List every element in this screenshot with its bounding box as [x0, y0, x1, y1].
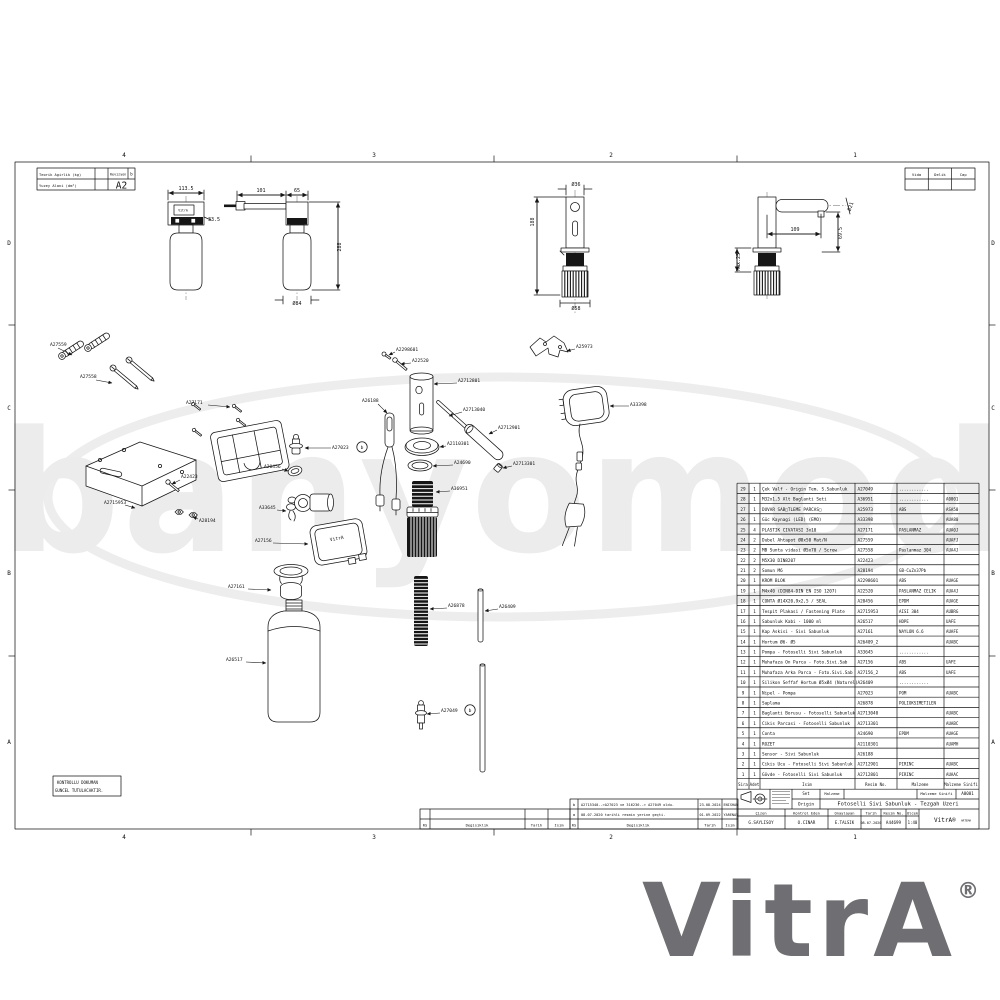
kontrol-label: Kontrol Eden: [793, 811, 820, 815]
parts-cell-sinif: AUABC: [946, 762, 959, 767]
parts-cell-sira: 9: [742, 690, 745, 696]
part-cap-hanger: [274, 565, 308, 600]
view-dispenser-side: [224, 191, 340, 304]
parts-cell-resim: A27161: [858, 629, 874, 635]
parts-cell-adet: 1: [753, 639, 756, 645]
leader-line: [389, 352, 395, 355]
revision-header: Tarih: [704, 822, 715, 827]
parts-cell-resim: A26409_2: [858, 639, 879, 645]
parts-cell-sira: 21: [740, 568, 746, 574]
parts-cell-malzeme: NAYLON 6.6: [899, 629, 924, 634]
parts-cell-sira: 6: [742, 721, 745, 727]
part-label: A20456: [264, 464, 281, 470]
parts-cell-adet: 2: [753, 548, 756, 554]
info-revision-value: b: [130, 172, 133, 177]
revision-header: RS: [572, 822, 577, 827]
parts-cell-sinif: UAFE: [946, 619, 956, 624]
dimension-label: Ø58: [571, 305, 580, 312]
zone-number-bottom: 1: [853, 834, 857, 841]
parts-cell-isim: DUVAR SAB□TLEME PARCAS□: [762, 507, 822, 513]
revision-date: 01.09.2022: [700, 813, 721, 817]
parts-cell-sinif: AUAFE: [946, 629, 959, 634]
dimension-label: 33.5: [208, 217, 220, 223]
parts-cell-malzeme: AISI 304: [899, 609, 919, 614]
view-dispenser-front: [168, 190, 211, 300]
part-label: A2713040: [463, 407, 485, 413]
revision-header: RS: [423, 822, 428, 827]
onay-label: Onaylayan: [835, 811, 855, 815]
dimension-label: 113.5: [178, 186, 193, 192]
parts-cell-adet: 2: [753, 558, 756, 564]
dimension-label: 65: [294, 188, 300, 194]
dimension-label: Max.25: [736, 253, 742, 271]
parts-cell-resim: A2713301: [858, 721, 879, 727]
parts-cell-isim: Hortum Ø6- Ø5: [762, 638, 796, 645]
info-revision-label: Revizyon: [110, 173, 126, 177]
parts-cell-adet: 1: [753, 588, 756, 594]
parts-cell-isim: MB Sunta vidasi Ø5x70 / Screw: [762, 547, 837, 554]
parts-cell-malzeme: ............: [899, 497, 929, 502]
leader-line: [246, 662, 266, 663]
revision-header: Degisiklik: [627, 822, 651, 827]
parts-cell-adet: 1: [753, 517, 756, 523]
parts-cell-isim: Cikis Ucu - Fotoselli Sivi Sabunluk: [762, 762, 853, 768]
parts-cell-adet: 1: [753, 670, 756, 676]
revision-date: 23.08.2024: [700, 803, 721, 807]
parts-cell-sira: 28: [740, 497, 746, 503]
parts-cell-sinif: AUABC: [946, 690, 959, 695]
leader-line: [434, 383, 457, 384]
part-label: A24690: [454, 460, 471, 466]
parts-cell-resim: A27156: [858, 660, 874, 666]
revision-change: A2715340-->A27023 ve 316236--> A27049 ol…: [581, 803, 674, 807]
parts-cell-sinif: AUAAC: [946, 772, 959, 777]
parts-cell-resim: A25973: [858, 507, 874, 513]
part-cover-front: [309, 518, 369, 571]
parts-cell-sira: 5: [742, 731, 745, 737]
parts-cell-resim: A26878: [858, 700, 874, 706]
parts-cell-resim: A2715953: [858, 609, 879, 615]
part-sensor: [376, 413, 400, 515]
parts-cell-malzeme: ............: [899, 650, 929, 655]
control-note-line1: KONTROLLU DOKUMAN: [57, 780, 99, 785]
revision-header: Isim: [554, 822, 564, 827]
part-label: A2715953: [104, 500, 126, 506]
dimension-label: 69.5: [838, 227, 844, 239]
projection-symbol: [741, 792, 767, 805]
parts-cell-sira: 7: [742, 711, 745, 717]
parts-cell-resim: A2712901: [858, 762, 879, 768]
parts-cell-sinif: AUAGE: [946, 731, 959, 736]
parts-cell-sinif: AUAGE: [946, 599, 959, 604]
zone-letter-right: D: [991, 240, 995, 247]
part-seal-conta: [408, 460, 432, 471]
zone-letter-right: C: [991, 405, 995, 412]
parts-cell-resim: A33398: [858, 517, 874, 523]
parts-cell-resim: A27156_2: [858, 670, 879, 676]
parts-cell-resim: A2110301: [858, 741, 879, 747]
zone-number-top: 4: [122, 152, 126, 159]
titleblock-note-bars: [772, 791, 790, 804]
technical-drawing: 44332211DDCCBBAATeorik Agirlik (kg)Yuzey…: [0, 0, 1000, 1000]
parts-header: Isim: [802, 782, 812, 787]
parts-cell-resim: A2712801: [858, 772, 879, 778]
parts-cell-sira: 8: [742, 700, 745, 706]
parts-cell-sira: 26: [740, 517, 746, 523]
part-outlet-tip: [493, 463, 503, 473]
zone-number-top: 3: [372, 152, 376, 159]
parts-cell-sira: 4: [742, 741, 745, 747]
parts-cell-malzeme: ABS: [899, 670, 907, 675]
parts-cell-sira: 18: [740, 599, 746, 605]
parts-cell-sira: 15: [740, 629, 746, 635]
part-label: A26409: [499, 604, 516, 610]
leader-line: [440, 446, 446, 447]
parts-cell-isim: Silikon Seffaf Hortum Ø5xØ4 (Naturel): [762, 679, 858, 686]
parts-cell-adet: 1: [753, 578, 756, 584]
parts-cell-malzeme: EPDM: [899, 731, 909, 736]
parts-cell-adet: 1: [753, 762, 756, 768]
part-screw-tiny: [381, 351, 408, 371]
parts-cell-sinif: AUA4J: [946, 548, 958, 553]
leader-line: [378, 404, 387, 413]
parts-cell-sira: 13: [740, 650, 746, 656]
parts-cell-resim: A26409: [858, 680, 874, 686]
parts-cell-sira: 2: [742, 762, 745, 768]
parts-cell-resim: A26188: [858, 751, 874, 757]
part-label: A27171: [186, 400, 203, 406]
part-housing-back: [210, 420, 290, 483]
parts-cell-malzeme: ABS: [899, 507, 907, 512]
zone-letter-left: A: [7, 739, 11, 746]
part-label: A27161: [228, 584, 245, 590]
view-spout-front: [534, 185, 592, 314]
kontrol-value: O.CINAR: [798, 820, 816, 825]
dimension-label: Ø36: [571, 181, 580, 188]
parts-cell-sinif: AUAFJ: [946, 537, 958, 542]
parts-cell-malzeme: POM: [899, 690, 907, 695]
parts-cell-isim: PLASTIK CIVATASI 3x10: [762, 527, 817, 533]
parts-cell-adet: 1: [753, 711, 756, 717]
parts-cell-resim: A26517: [858, 619, 874, 625]
parts-cell-resim: A2713040: [858, 711, 879, 717]
parts-cell-isim: Çek Valf - Origin Tem. S.Sabunluk: [762, 487, 848, 493]
parts-cell-isim: Kap Askisi - Sivi Sabunluk: [762, 629, 830, 635]
leader-line: [125, 505, 135, 508]
parts-cell-sinif: AUABC: [946, 721, 959, 726]
parts-cell-sinif: ASA50: [946, 507, 959, 512]
leader-line: [96, 380, 112, 383]
control-note-box: [53, 776, 121, 796]
parts-cell-sira: 29: [740, 487, 746, 493]
parts-cell-isim: Cikis Parcasi - Fotoselli Sabunluk: [762, 721, 850, 727]
parts-cell-malzeme: GB-CuZn37Pb: [899, 568, 927, 573]
device-brand-label: VitrA: [178, 209, 188, 213]
revision-name: ENISHAN: [724, 803, 739, 807]
parts-cell-isim: Muhafaza On Parca - Foto.Sivi.Sab: [762, 660, 848, 666]
dimension-label: 109: [790, 227, 799, 233]
drawing-title: Fotoselli Sivi Sabunluk - Tezgah Uzeri: [837, 802, 958, 808]
dimension-label: 188: [530, 217, 536, 226]
parts-cell-isim: Pompa - Fotoselli Sivi Sabunluk: [762, 650, 843, 656]
part-label: A2713301: [513, 461, 535, 467]
parts-cell-resim: A27558: [858, 548, 874, 554]
titleblock-origin: Origin: [798, 801, 815, 807]
revision-rs: a: [573, 812, 575, 817]
parts-cell-isim: Baglanti Borusu - Fotoselli Sabunluk: [762, 711, 856, 717]
part-label: A27558: [80, 374, 97, 380]
parts-cell-isim: Conta: [762, 731, 775, 737]
zone-letter-left: D: [7, 240, 11, 247]
parts-cell-sira: 22: [740, 558, 746, 564]
part-label: A28194: [199, 518, 216, 524]
part-label: A25973: [576, 344, 593, 350]
parts-cell-malzeme: PIRINC: [899, 762, 914, 767]
parts-cell-sinif: UAFE: [946, 670, 956, 675]
revision-change: 08.07.2020 tarihli resmin yerine geçti.: [581, 813, 665, 817]
tarih-label: Tarih: [865, 811, 876, 815]
leader-line: [489, 430, 497, 434]
parts-cell-isim: M4x40 (DIN84-DIN EN ISO 1207): [762, 588, 837, 594]
parts-cell-malzeme: PASLANMAZ: [899, 527, 922, 532]
parts-cell-resim: A27559: [858, 537, 874, 543]
parts-cell-sira: 11: [740, 670, 746, 676]
leader-line: [427, 713, 440, 714]
parts-cell-isim: KROM BLOK: [762, 578, 786, 584]
parts-cell-malzeme: Paslanmaz 304: [899, 548, 932, 553]
parts-cell-adet: 1: [753, 751, 756, 757]
part-nipple: [290, 434, 303, 454]
resim-no-label: Resim No.: [884, 811, 904, 815]
parts-cell-adet: 1: [753, 731, 756, 737]
leader-line: [273, 543, 308, 544]
leader-line: [485, 609, 498, 611]
parts-cell-adet: 2: [753, 537, 756, 543]
parts-cell-resim: A27171: [858, 527, 874, 533]
hole-table-header: Vida: [912, 172, 921, 177]
parts-cell-adet: 1: [753, 599, 756, 605]
part-label: A26188: [362, 398, 379, 404]
part-pump: [287, 494, 334, 521]
leader-line: [430, 608, 447, 609]
parts-cell-isim: Dubel Ahtapot Ø8x50 Mat/N: [762, 536, 827, 543]
part-bottle: [268, 600, 320, 722]
leader-line: [503, 466, 512, 468]
leader-line: [193, 517, 198, 519]
leader-line: [208, 405, 230, 407]
parts-cell-malzeme: PIRINC: [899, 772, 914, 777]
parts-cell-isim: Gövde - Fotoselli Sivi Sabunluk: [762, 772, 843, 778]
parts-cell-adet: 1: [753, 772, 756, 778]
parts-cell-sira: 3: [742, 751, 745, 757]
hole-table-header: Delik: [934, 172, 946, 177]
parts-cell-adet: 1: [753, 487, 756, 493]
parts-cell-adet: 1: [753, 619, 756, 625]
parts-cell-isim: Tespit Plakasi / Fastening Plate: [762, 609, 845, 615]
part-fastening-plate: [86, 442, 196, 506]
parts-cell-sira: 19: [740, 588, 746, 594]
cizen-label: Çizen: [755, 811, 766, 815]
parts-cell-resim: A27023: [858, 690, 874, 696]
parts-cell-sira: 20: [740, 578, 746, 584]
parts-cell-sira: 12: [740, 660, 746, 666]
parts-cell-resim: A20456: [858, 599, 874, 605]
leader-line: [567, 349, 575, 351]
parts-cell-isim: Nipel - Pompa: [762, 690, 796, 696]
parts-cell-sinif: A0001: [946, 497, 959, 502]
parts-cell-malzeme: ............: [899, 680, 929, 685]
parts-header: Adet: [750, 782, 760, 787]
hole-table-header: Cap: [960, 172, 968, 177]
registered-mark: ®: [957, 879, 979, 904]
parts-cell-isim: M32x1,5 Alt Baglanti Seti: [762, 497, 827, 503]
parts-cell-adet: 1: [753, 741, 756, 747]
parts-cell-isim: ROZET: [762, 741, 775, 747]
part-label: A36951: [451, 486, 468, 492]
parts-cell-sinif: UAFE: [946, 660, 956, 665]
part-label: A22423: [181, 474, 198, 480]
part-label: A2298601: [396, 347, 418, 353]
olcek-value: 1:40: [908, 820, 918, 825]
parts-cell-isim: Somun M6: [762, 568, 783, 574]
parts-cell-malzeme: HDPE: [899, 619, 909, 624]
zone-letter-left: C: [7, 405, 11, 412]
parts-cell-sinif: AUABC: [946, 639, 959, 644]
zone-letter-right: A: [991, 739, 995, 746]
parts-cell-sinif: AUABC: [946, 711, 959, 716]
leader-line: [277, 510, 286, 511]
part-label: A33398: [630, 402, 647, 408]
leader-line: [436, 491, 450, 492]
titleblock-logo: VitrA®: [934, 817, 956, 824]
parts-cell-adet: 4: [753, 527, 756, 533]
part-main-body: [410, 373, 433, 434]
dimension-label: 101: [256, 188, 265, 194]
titleblock-artema: ARTEMA: [961, 819, 971, 823]
parts-cell-adet: 1: [753, 497, 756, 503]
parts-cell-resim: A28194: [858, 568, 874, 574]
part-label: A33645: [259, 505, 276, 511]
parts-cell-sira: 27: [740, 507, 746, 513]
revision-header: Degisiklik: [466, 822, 490, 827]
parts-cell-sinif: AUAMH: [946, 741, 959, 746]
olcek-label: Olcek: [907, 811, 919, 815]
parts-cell-resim: A2298601: [858, 578, 879, 584]
parts-cell-resim: A27049: [858, 487, 874, 493]
parts-cell-adet: 1: [753, 690, 756, 696]
dimension-label: Ø84: [292, 300, 301, 307]
parts-cell-isim: Muhafaza Arka Parca - Foto.Sivi.Sab: [762, 670, 853, 676]
leader-line: [248, 589, 271, 590]
parts-cell-malzeme: PASLANMAZ CELIK: [899, 588, 937, 593]
parts-cell-resim: A22520: [858, 588, 874, 594]
parts-cell-malzeme: ABS: [899, 660, 907, 665]
zone-number-bottom: 2: [609, 834, 613, 841]
parts-cell-isim: Sensor - Sivi Sabunluk: [762, 751, 819, 757]
titleblock-malzeme-label: Malzeme: [824, 792, 839, 796]
part-hoses: [478, 589, 485, 772]
leader-line: [433, 465, 453, 466]
part-mounting-screws: [109, 356, 156, 392]
parts-cell-adet: 1: [753, 721, 756, 727]
part-seal-small: [287, 465, 303, 478]
parts-cell-sinif: AUA80: [946, 517, 959, 522]
parts-cell-resim: A33645: [858, 650, 874, 656]
material-class-label: Malzeme Sinifi: [920, 791, 953, 796]
parts-header: Resim No.: [865, 782, 887, 787]
titleblock-set-label: Set: [802, 791, 810, 796]
material-class-value: A0001: [961, 791, 974, 796]
parts-cell-adet: 1: [753, 700, 756, 706]
parts-header: Malzeme Sinifi: [944, 782, 978, 787]
revision-header: Tarih: [531, 822, 542, 827]
parts-cell-adet: 1: [753, 609, 756, 615]
parts-cell-malzeme: ABS: [899, 578, 907, 583]
cizen-value: G.SAYLISOY: [748, 820, 774, 825]
parts-cell-adet: 1: [753, 507, 756, 513]
part-label: A27156: [255, 538, 272, 544]
vitra-logo: VitrA®: [642, 862, 979, 981]
parts-cell-adet: 1: [753, 629, 756, 635]
parts-cell-malzeme: EPDM: [899, 599, 909, 604]
parts-cell-isim: Sabunluk Kabi - 1000 ml: [762, 619, 822, 625]
part-label: A2110301: [447, 441, 469, 447]
sheet-size: A2: [116, 181, 127, 192]
revision-header: Isim: [725, 822, 735, 827]
parts-cell-isim: CONTA Ø14X20,9x2,5 / SEAL: [762, 598, 827, 605]
tarih-value: 08.07.2020: [860, 821, 881, 825]
parts-cell-sinif: AUBRG: [946, 609, 959, 614]
zone-number-top: 1: [853, 152, 857, 159]
zone-number-bottom: 4: [122, 834, 126, 841]
zone-number-bottom: 3: [372, 834, 376, 841]
parts-cell-sira: 10: [740, 680, 746, 686]
view-spout-side: [735, 192, 850, 300]
revision-rs: b: [573, 802, 576, 807]
zone-letter-left: B: [7, 570, 11, 577]
zone-number-top: 2: [609, 152, 613, 159]
part-label: A27023: [332, 445, 349, 451]
parts-cell-malzeme: POLIOKSIMETILEN: [899, 700, 937, 705]
parts-cell-sira: 1: [742, 772, 745, 778]
parts-cell-adet: 1: [753, 650, 756, 656]
part-connection-pipe: [436, 400, 468, 429]
parts-cell-resim: A22423: [858, 558, 874, 564]
drawing-page: banyomoda: [0, 0, 1000, 1000]
zone-letter-right: B: [991, 570, 995, 577]
info-area-label: Yuzey Alani (dm²): [39, 184, 77, 188]
parts-cell-isim: M5X30 DIN8207: [762, 558, 796, 564]
parts-cell-sira: 17: [740, 609, 746, 615]
parts-cell-sira: 23: [740, 548, 746, 554]
parts-header: Malzeme: [912, 782, 929, 787]
part-power-supply: [558, 385, 611, 549]
parts-cell-adet: 1: [753, 680, 756, 686]
onay-value: E.TALSIK: [835, 820, 855, 825]
parts-cell-resim: A24690: [858, 731, 874, 737]
control-note-line2: GUNCEL TUTULACAKTIR.: [55, 788, 103, 793]
part-label: A26517: [226, 657, 243, 663]
parts-header: Sira: [738, 782, 748, 787]
parts-cell-sinif: AUAGE: [946, 578, 959, 583]
parts-cell-sira: 16: [740, 619, 746, 625]
part-wall-clip: [530, 336, 568, 357]
parts-cell-sinif: AUA4J: [946, 588, 958, 593]
part-label: A27559: [50, 342, 67, 348]
part-label: A2712801: [458, 378, 480, 384]
leader-line: [401, 363, 411, 364]
part-nuts: [175, 510, 197, 518]
